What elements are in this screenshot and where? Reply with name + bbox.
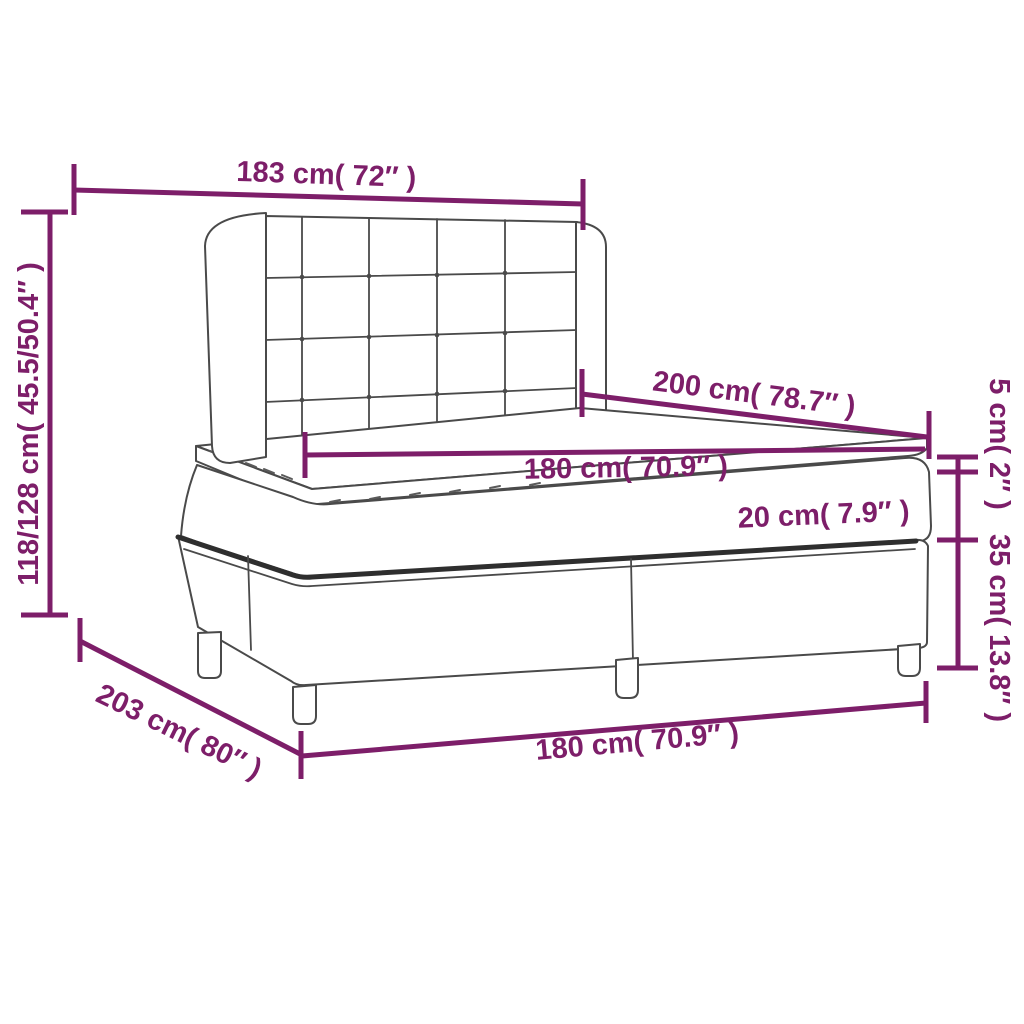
dim-label-headboard-width: 183 cm( 72″ ): [236, 156, 417, 194]
leg-front-left: [293, 685, 316, 724]
dim-label-headboard-height: 118/128 cm( 45.5/50.4″ ): [13, 262, 45, 585]
dim-headboard-height: 118/128 cm( 45.5/50.4″ ): [13, 212, 68, 615]
dim-right-height-stack: 5 cm( 2″ ) 35 cm( 13.8″ ): [937, 378, 1015, 722]
dim-label-topper-thickness: 5 cm( 2″ ): [983, 378, 1015, 510]
bed-dimension-diagram: 183 cm( 72″ ) 118/128 cm( 45.5/50.4″ ) 2…: [0, 0, 1024, 1024]
diagram-canvas: 183 cm( 72″ ) 118/128 cm( 45.5/50.4″ ) 2…: [0, 0, 1024, 1024]
leg-front-middle: [616, 658, 638, 698]
dim-label-base-width: 180 cm( 70.9″ ): [534, 717, 740, 767]
dim-label-base-height: 35 cm( 13.8″ ): [983, 534, 1015, 722]
leg-rear-left: [198, 632, 221, 678]
dimension-line: [74, 190, 583, 204]
leg-front-right: [898, 644, 920, 676]
dim-label-mattress-width: 180 cm( 70.9″ ): [524, 450, 729, 486]
headboard-left-wing: [205, 213, 266, 463]
dim-base-width: 180 cm( 70.9″ ): [302, 681, 926, 767]
